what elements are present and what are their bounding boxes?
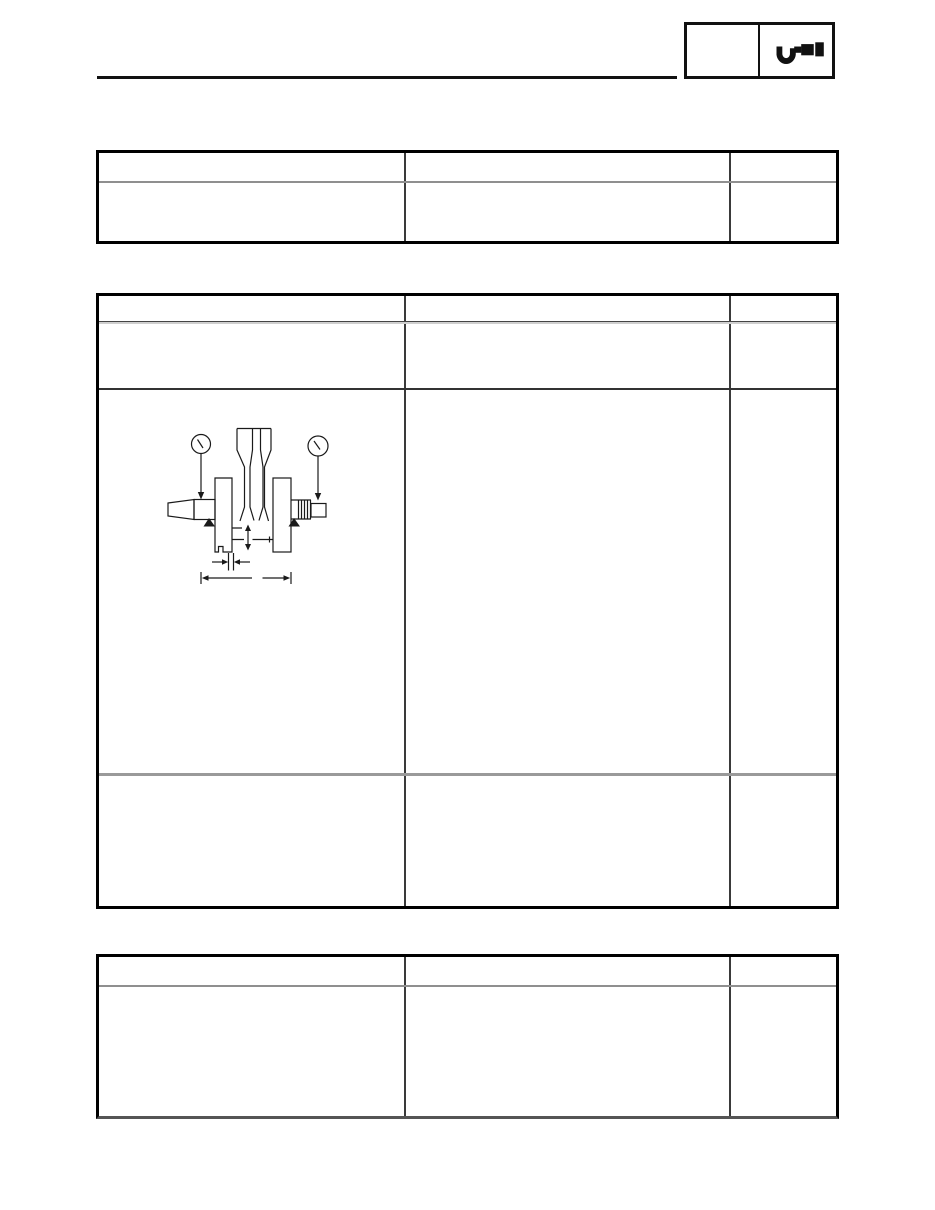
t3-row1-col3 (731, 987, 836, 1115)
connecting-rod (237, 429, 271, 522)
spec-table-3 (96, 954, 839, 1119)
t1-row1-col1 (99, 183, 404, 241)
t3-row1-col1 (99, 987, 404, 1115)
manual-page (0, 0, 935, 1210)
t2-row3-col2 (406, 776, 729, 906)
crank-web-right (273, 478, 291, 552)
t2-row1-col3 (731, 324, 836, 388)
t2-row2-col3 (731, 390, 836, 773)
t3-row1-col2 (406, 987, 729, 1115)
t2-header-col2 (406, 296, 729, 321)
t2-row1-col1 (99, 324, 404, 388)
t1-header-col1 (99, 153, 404, 181)
t1-header-col2 (406, 153, 729, 181)
splined-shaft-end (299, 500, 311, 519)
micrometer-icon (760, 25, 832, 77)
dial-needle-left (198, 440, 204, 449)
t3-header-col2 (406, 957, 729, 985)
spec-table-1 (96, 150, 839, 244)
t2-row3-col3 (731, 776, 836, 906)
spec-table-2 (96, 293, 839, 909)
t3-header-col1 (99, 957, 404, 985)
big-end-side-clearance-arrow (245, 525, 251, 551)
crankshaft-runout-diagram (160, 418, 342, 590)
chapter-tab-box (684, 22, 835, 79)
overall-width-dimension (201, 572, 291, 584)
t2-row1-col2 (406, 324, 729, 388)
crankshaft-tapered-end (168, 500, 194, 520)
t1-header-col3 (731, 153, 836, 181)
t2-row3-col1 (99, 776, 404, 906)
t1-row1-col3 (731, 183, 836, 241)
crank-web-left (215, 478, 232, 552)
t3-header-col3 (731, 957, 836, 985)
t2-header-col1 (99, 296, 404, 321)
dial-needle-right (314, 441, 320, 450)
header-rule (97, 76, 677, 79)
t2-header-col3 (731, 296, 836, 321)
t1-row1-col2 (406, 183, 729, 241)
chapter-label-cell (687, 25, 760, 76)
t2-row2-col2 (406, 390, 729, 773)
chapter-icon-cell (760, 25, 832, 76)
runout-point-dimension (212, 553, 250, 571)
